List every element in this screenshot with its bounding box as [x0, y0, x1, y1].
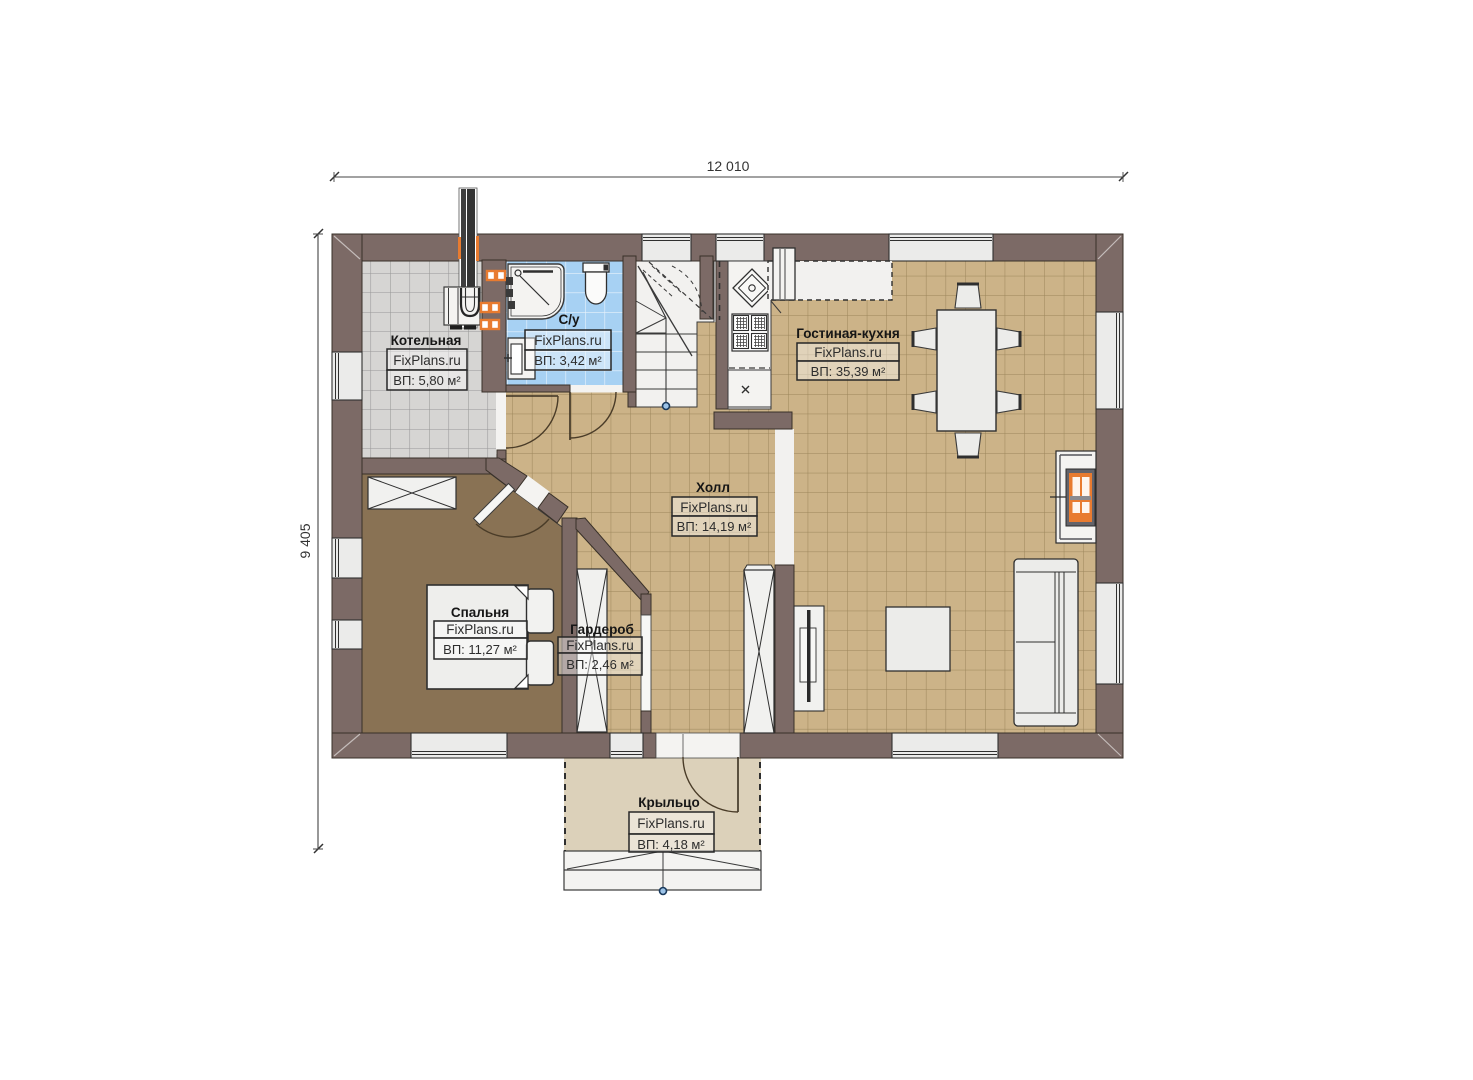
svg-text:FixPlans.ru: FixPlans.ru	[393, 353, 461, 368]
svg-text:9 405: 9 405	[297, 523, 313, 558]
svg-text:Котельная: Котельная	[391, 333, 462, 348]
svg-text:FixPlans.ru: FixPlans.ru	[446, 622, 514, 637]
svg-text:Гардероб: Гардероб	[570, 622, 634, 637]
svg-text:ВП: 14,19 м²: ВП: 14,19 м²	[677, 519, 752, 534]
svg-text:12 010: 12 010	[707, 158, 750, 174]
svg-text:ВП: 5,80 м²: ВП: 5,80 м²	[393, 373, 461, 388]
svg-text:FixPlans.ru: FixPlans.ru	[637, 816, 705, 831]
svg-text:Гостиная-кухня: Гостиная-кухня	[796, 326, 899, 341]
svg-text:FixPlans.ru: FixPlans.ru	[814, 345, 882, 360]
svg-text:FixPlans.ru: FixPlans.ru	[680, 500, 748, 515]
svg-text:ВП: 4,18 м²: ВП: 4,18 м²	[637, 837, 705, 852]
svg-text:FixPlans.ru: FixPlans.ru	[566, 638, 634, 653]
svg-text:Крыльцо: Крыльцо	[638, 795, 699, 810]
svg-text:ВП: 3,42 м²: ВП: 3,42 м²	[534, 353, 602, 368]
svg-text:FixPlans.ru: FixPlans.ru	[534, 333, 602, 348]
svg-text:ВП: 35,39 м²: ВП: 35,39 м²	[811, 364, 886, 379]
svg-text:Спальня: Спальня	[451, 605, 509, 620]
svg-text:ВП: 11,27 м²: ВП: 11,27 м²	[443, 642, 517, 657]
svg-text:Холл: Холл	[696, 480, 730, 495]
svg-text:ВП: 2,46 м²: ВП: 2,46 м²	[566, 657, 634, 672]
svg-text:С/у: С/у	[558, 312, 580, 327]
